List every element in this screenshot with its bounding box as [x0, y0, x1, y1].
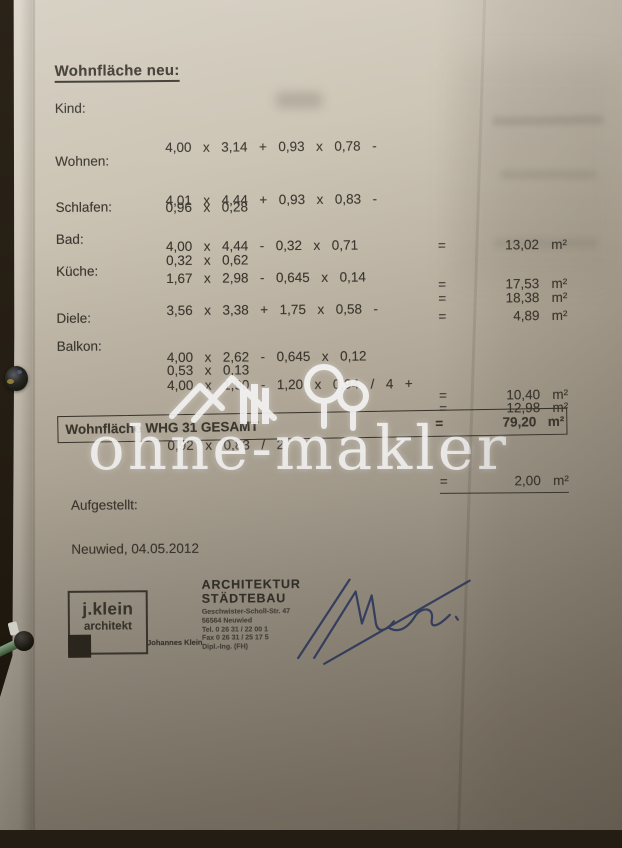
photo-background: Wohnfläche neu: Kind: 4,00 x 3,14 + 0,93…	[0, 0, 622, 830]
architect-person-name: Johannes Klein	[147, 638, 203, 647]
room-label: Bad:	[56, 229, 166, 250]
stamp-title: architekt	[70, 620, 146, 633]
watermark-text: ohne-makler	[88, 413, 558, 485]
room-label: Kind:	[55, 98, 165, 119]
screw-glint	[7, 379, 14, 384]
document-title: Wohnfläche neu:	[55, 62, 180, 83]
stamp-name: j.klein	[70, 599, 146, 620]
place-and-date: Neuwied, 04.05.2012	[71, 541, 199, 557]
room-label: Küche:	[56, 261, 166, 282]
screw-glint	[17, 370, 22, 374]
document-sheet: Wohnfläche neu: Kind: 4,00 x 3,14 + 0,93…	[0, 0, 622, 830]
binding-screw-icon	[5, 366, 28, 391]
room-label: Balkon:	[57, 336, 167, 357]
clip-knob	[14, 631, 34, 651]
room-label: Diele:	[56, 308, 166, 329]
stamp-logo-square	[68, 635, 91, 658]
room-label: Schlafen:	[56, 197, 166, 218]
handwritten-signature	[283, 565, 484, 667]
room-label: Wohnen:	[55, 151, 165, 172]
architect-stamp: j.klein architekt	[68, 590, 149, 655]
prepared-by-label: Aufgestellt:	[71, 497, 138, 513]
binder-clip-icon	[0, 622, 48, 670]
